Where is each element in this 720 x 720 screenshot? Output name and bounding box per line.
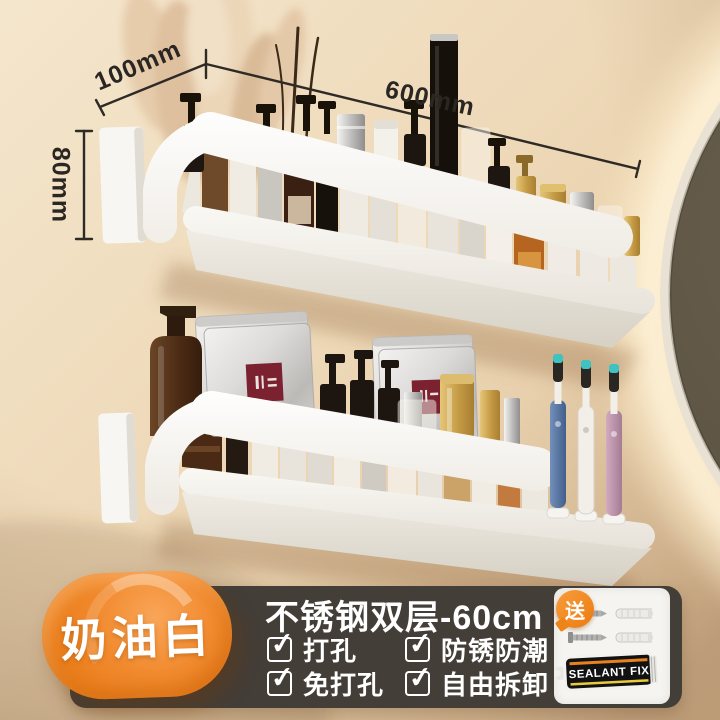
height-dimension-label: 80mm — [46, 147, 75, 223]
product-image: P A — [0, 0, 720, 720]
upper-shelf-backplate — [99, 126, 147, 243]
lower-shelf-backplate — [98, 412, 138, 523]
scene-graphic: P A — [0, 0, 720, 720]
electric-toothbrushes — [547, 354, 625, 524]
pouch-logo — [246, 363, 284, 403]
